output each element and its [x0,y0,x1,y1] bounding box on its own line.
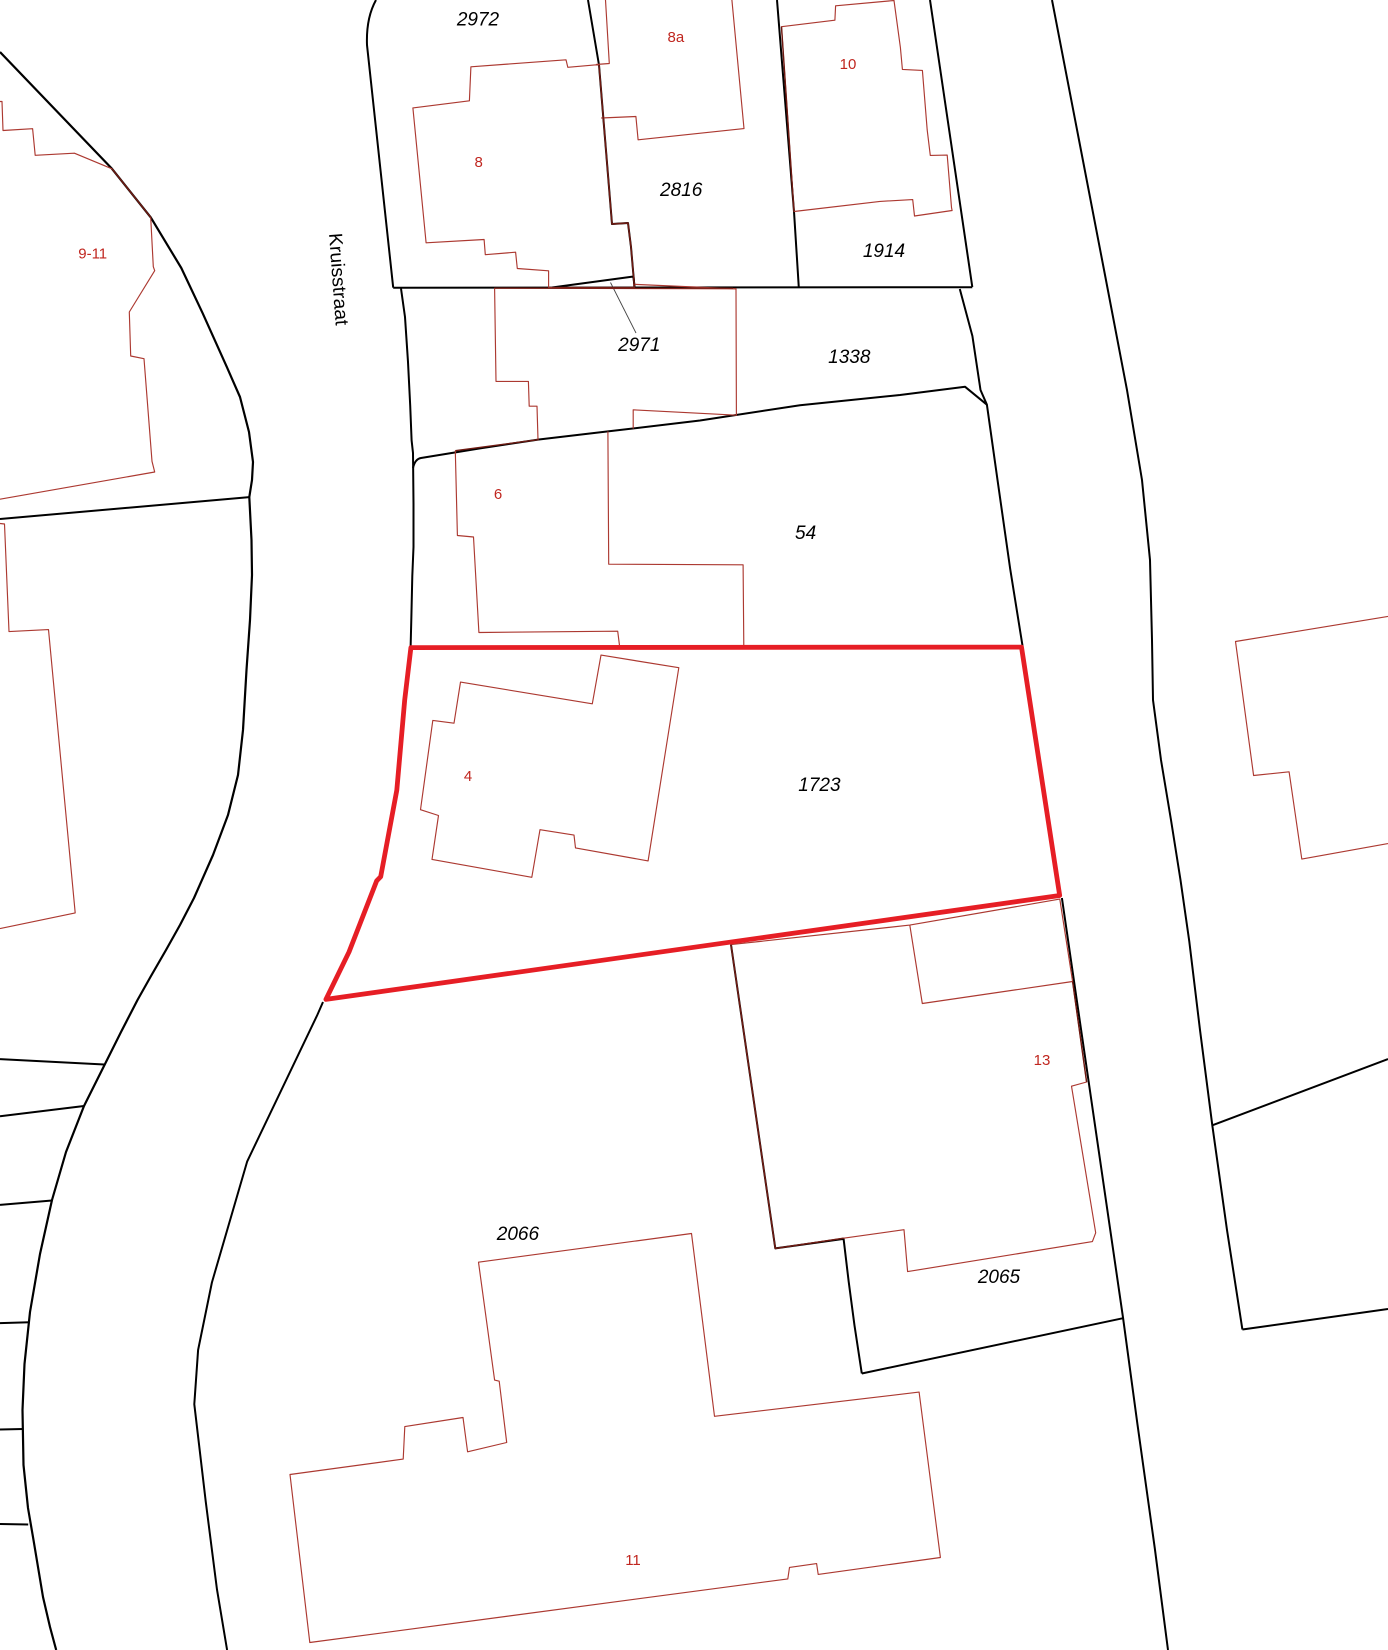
svg-text:1723: 1723 [798,775,841,796]
svg-text:54: 54 [795,523,816,544]
svg-text:2972: 2972 [456,9,500,30]
svg-text:2066: 2066 [496,1224,540,1245]
svg-text:4: 4 [464,768,472,785]
svg-text:8: 8 [475,154,483,171]
svg-text:10: 10 [840,56,857,73]
svg-text:2816: 2816 [659,180,703,201]
svg-text:2971: 2971 [617,335,660,356]
svg-text:2065: 2065 [977,1267,1021,1288]
svg-text:6: 6 [494,486,502,503]
svg-text:13: 13 [1034,1052,1051,1069]
svg-text:11: 11 [625,1552,641,1569]
svg-text:8a: 8a [668,29,685,46]
svg-text:1338: 1338 [828,347,871,368]
svg-text:1914: 1914 [863,241,905,262]
svg-text:9-11: 9-11 [78,246,107,263]
